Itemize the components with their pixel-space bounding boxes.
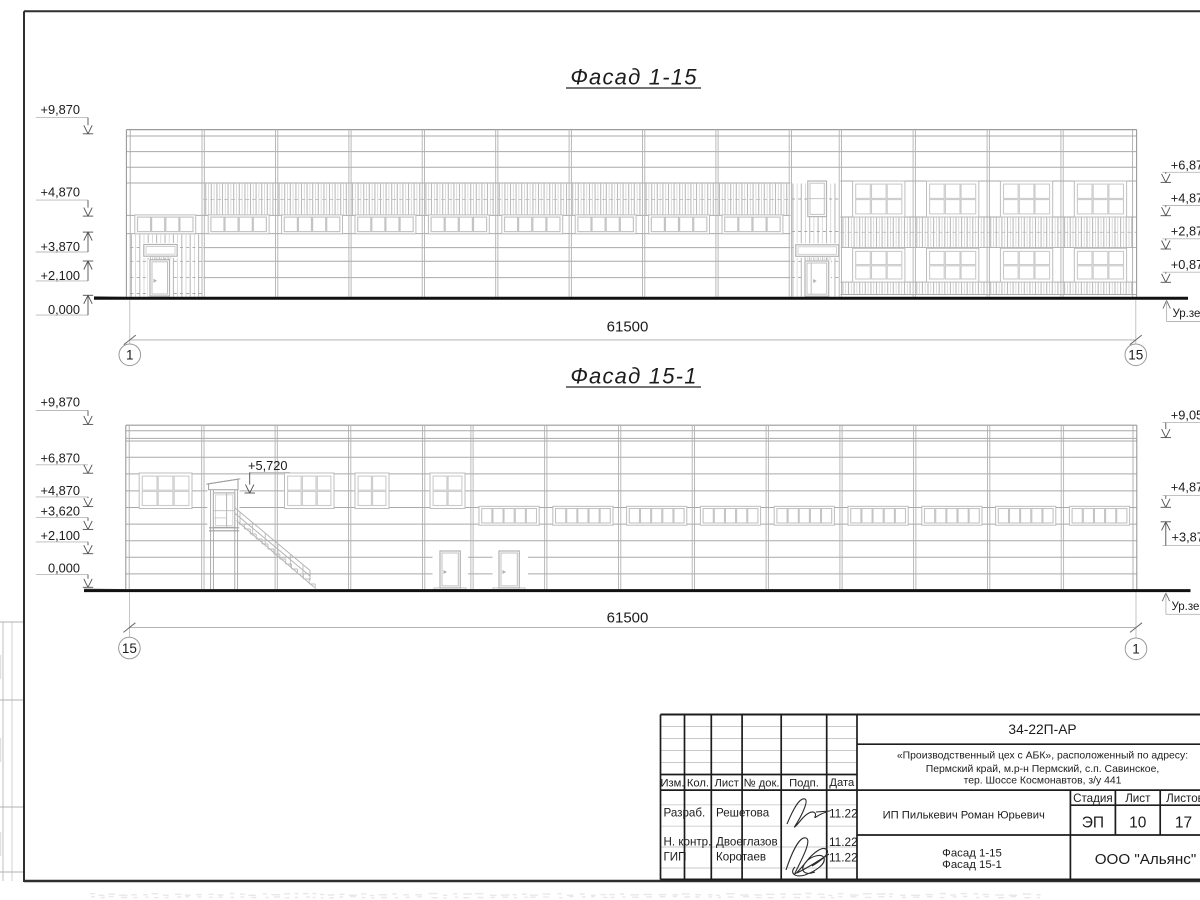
svg-text:1: 1: [126, 348, 134, 363]
svg-text:Лист: Лист: [1125, 792, 1151, 805]
svg-text:Н. контр.: Н. контр.: [664, 835, 712, 848]
svg-text:34-22П-АР: 34-22П-АР: [1008, 722, 1076, 737]
svg-text:Кол.: Кол.: [687, 778, 709, 790]
svg-text:+0,870: +0,870: [1171, 257, 1200, 272]
svg-text:Решетова: Решетова: [716, 806, 770, 819]
svg-text:Разраб.: Разраб.: [664, 806, 706, 819]
svg-text:+6,870: +6,870: [1171, 157, 1200, 172]
svg-text:Ур.земли: Ур.земли: [1173, 308, 1200, 320]
svg-text:+2,100: +2,100: [41, 528, 81, 543]
svg-text:Ур.земли: Ур.земли: [1172, 601, 1200, 613]
svg-text:Фасад 15-1: Фасад 15-1: [942, 859, 1002, 871]
svg-text:Дата: Дата: [829, 777, 855, 789]
svg-text:ИП Пилькевич Роман Юрьевич: ИП Пилькевич Роман Юрьевич: [883, 810, 1045, 822]
svg-text:11.22: 11.22: [829, 807, 858, 821]
svg-text:Стадия: Стадия: [1073, 792, 1113, 805]
svg-text:+4,870: +4,870: [1171, 191, 1200, 206]
svg-text:15: 15: [1128, 348, 1143, 363]
svg-text:№ док.: № док.: [744, 778, 780, 790]
svg-text:ГИП: ГИП: [664, 851, 687, 864]
svg-text:ЭП: ЭП: [1082, 815, 1104, 832]
svg-text:«Производственный цех с АБК»,: «Производственный цех с АБК», расположен…: [897, 751, 1188, 762]
svg-text:+6,870: +6,870: [41, 451, 81, 466]
svg-text:15: 15: [122, 641, 137, 656]
svg-text:17: 17: [1175, 815, 1192, 832]
svg-text:Лист: Лист: [715, 778, 739, 790]
svg-text:+3,870: +3,870: [1172, 530, 1200, 545]
svg-text:61500: 61500: [607, 609, 649, 626]
svg-text:0,000: 0,000: [48, 561, 80, 576]
svg-text:тер. Шоссе Космонавтов, з/у 44: тер. Шоссе Космонавтов, з/у 441: [964, 776, 1122, 787]
svg-text:1: 1: [1132, 642, 1140, 657]
svg-text:Фасад 1-15: Фасад 1-15: [570, 65, 697, 90]
svg-text:+4,870: +4,870: [41, 185, 81, 200]
svg-text:Двоеглазов: Двоеглазов: [716, 835, 778, 848]
svg-text:+2,870: +2,870: [1171, 224, 1200, 239]
svg-text:Фасад 1-15: Фасад 1-15: [942, 848, 1002, 860]
svg-text:10: 10: [1129, 815, 1147, 832]
svg-text:+5,720: +5,720: [248, 458, 288, 473]
svg-text:61500: 61500: [607, 318, 649, 335]
svg-text:ООО "Альянс": ООО "Альянс": [1095, 851, 1197, 868]
svg-text:Листов: Листов: [1166, 792, 1200, 805]
svg-text:+3,620: +3,620: [41, 504, 81, 519]
svg-text:Пермский край, м.р-н Пермский,: Пермский край, м.р-н Пермский, с.п. Сави…: [926, 764, 1160, 775]
svg-text:+9,870: +9,870: [41, 102, 81, 117]
svg-text:+4,870: +4,870: [1171, 480, 1200, 495]
svg-text:+4,870: +4,870: [41, 483, 81, 498]
svg-text:Коротаев: Коротаев: [716, 851, 766, 864]
svg-text:Изм.: Изм.: [661, 778, 685, 790]
svg-text:Подп.: Подп.: [789, 778, 819, 790]
svg-text:Фасад 15-1: Фасад 15-1: [570, 364, 697, 389]
svg-text:11.22: 11.22: [829, 835, 858, 849]
svg-text:+9,050: +9,050: [1171, 407, 1200, 422]
svg-text:+9,870: +9,870: [41, 394, 81, 409]
svg-text:11.22: 11.22: [829, 851, 858, 865]
